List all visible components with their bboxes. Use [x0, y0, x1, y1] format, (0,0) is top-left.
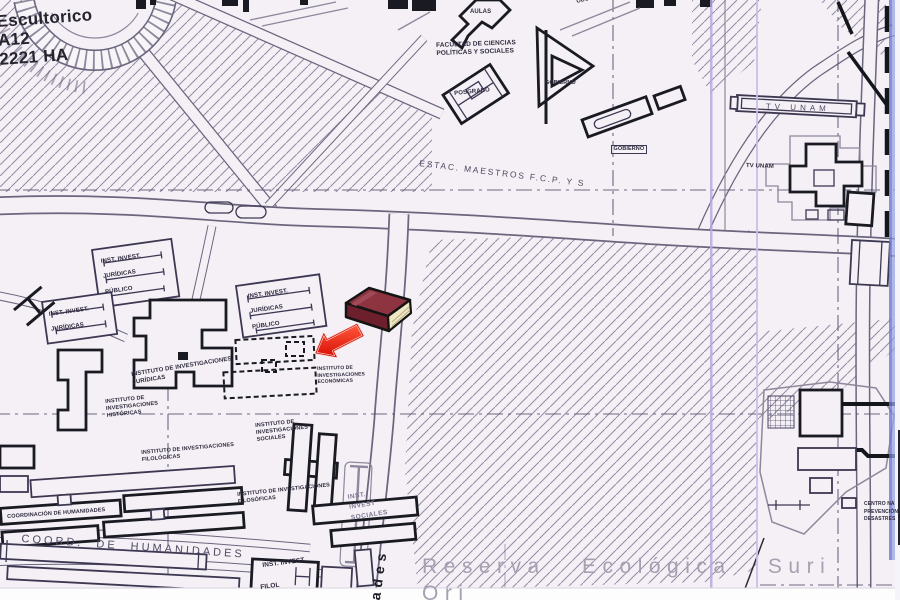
label-gobierno-lower: GOBIERNO	[611, 145, 647, 154]
label-inst-invest-juridicas-east: INST. INVEST. JURÍDICAS PÚBLICO	[247, 284, 293, 335]
label-facultad-ciencias-politicas: FACULTAD DE CIENCIAS POLÍTICAS Y SOCIALE…	[436, 39, 516, 59]
label-gobierno-upper: GOBIERNO	[545, 80, 576, 87]
label-inst-invest-sociales: INST. INVEST SOCIALES	[347, 487, 389, 524]
label-inst-invest-juridicas-north: INST. INVEST. JURÍDICAS PÚBLICO	[100, 249, 146, 300]
red-arrow-icon	[316, 324, 363, 356]
label-inst-invest-juridicas-west: INST. INVEST. JURÍDICAS	[48, 302, 92, 338]
campus-map-stage: Escultorico A12 2221 HA AULAS FACULTAD D…	[0, 0, 900, 600]
label-instituto-economicas: INSTITUTO DE INVESTIGACIONES ECONÓMICAS	[317, 364, 365, 385]
inst-economicas-building	[223, 336, 316, 398]
map-sheet-note: Escultorico A12 2221 HA	[0, 5, 96, 69]
label-centro-prevencion-desastres: CENTRO NA PREVENCIÓN DESASTRES	[864, 501, 898, 524]
label-tv-unam-street: TV UNAM	[766, 102, 830, 115]
inst-historicas-building	[58, 350, 102, 430]
label-aulas: AULAS	[470, 9, 491, 17]
label-reserva-ecologica: Reserva Ecológica Suri Ori	[422, 553, 900, 600]
map-artwork	[0, 0, 900, 600]
north-buildings	[443, 0, 685, 137]
label-tv-unam-building: TV UNAM	[746, 163, 774, 172]
